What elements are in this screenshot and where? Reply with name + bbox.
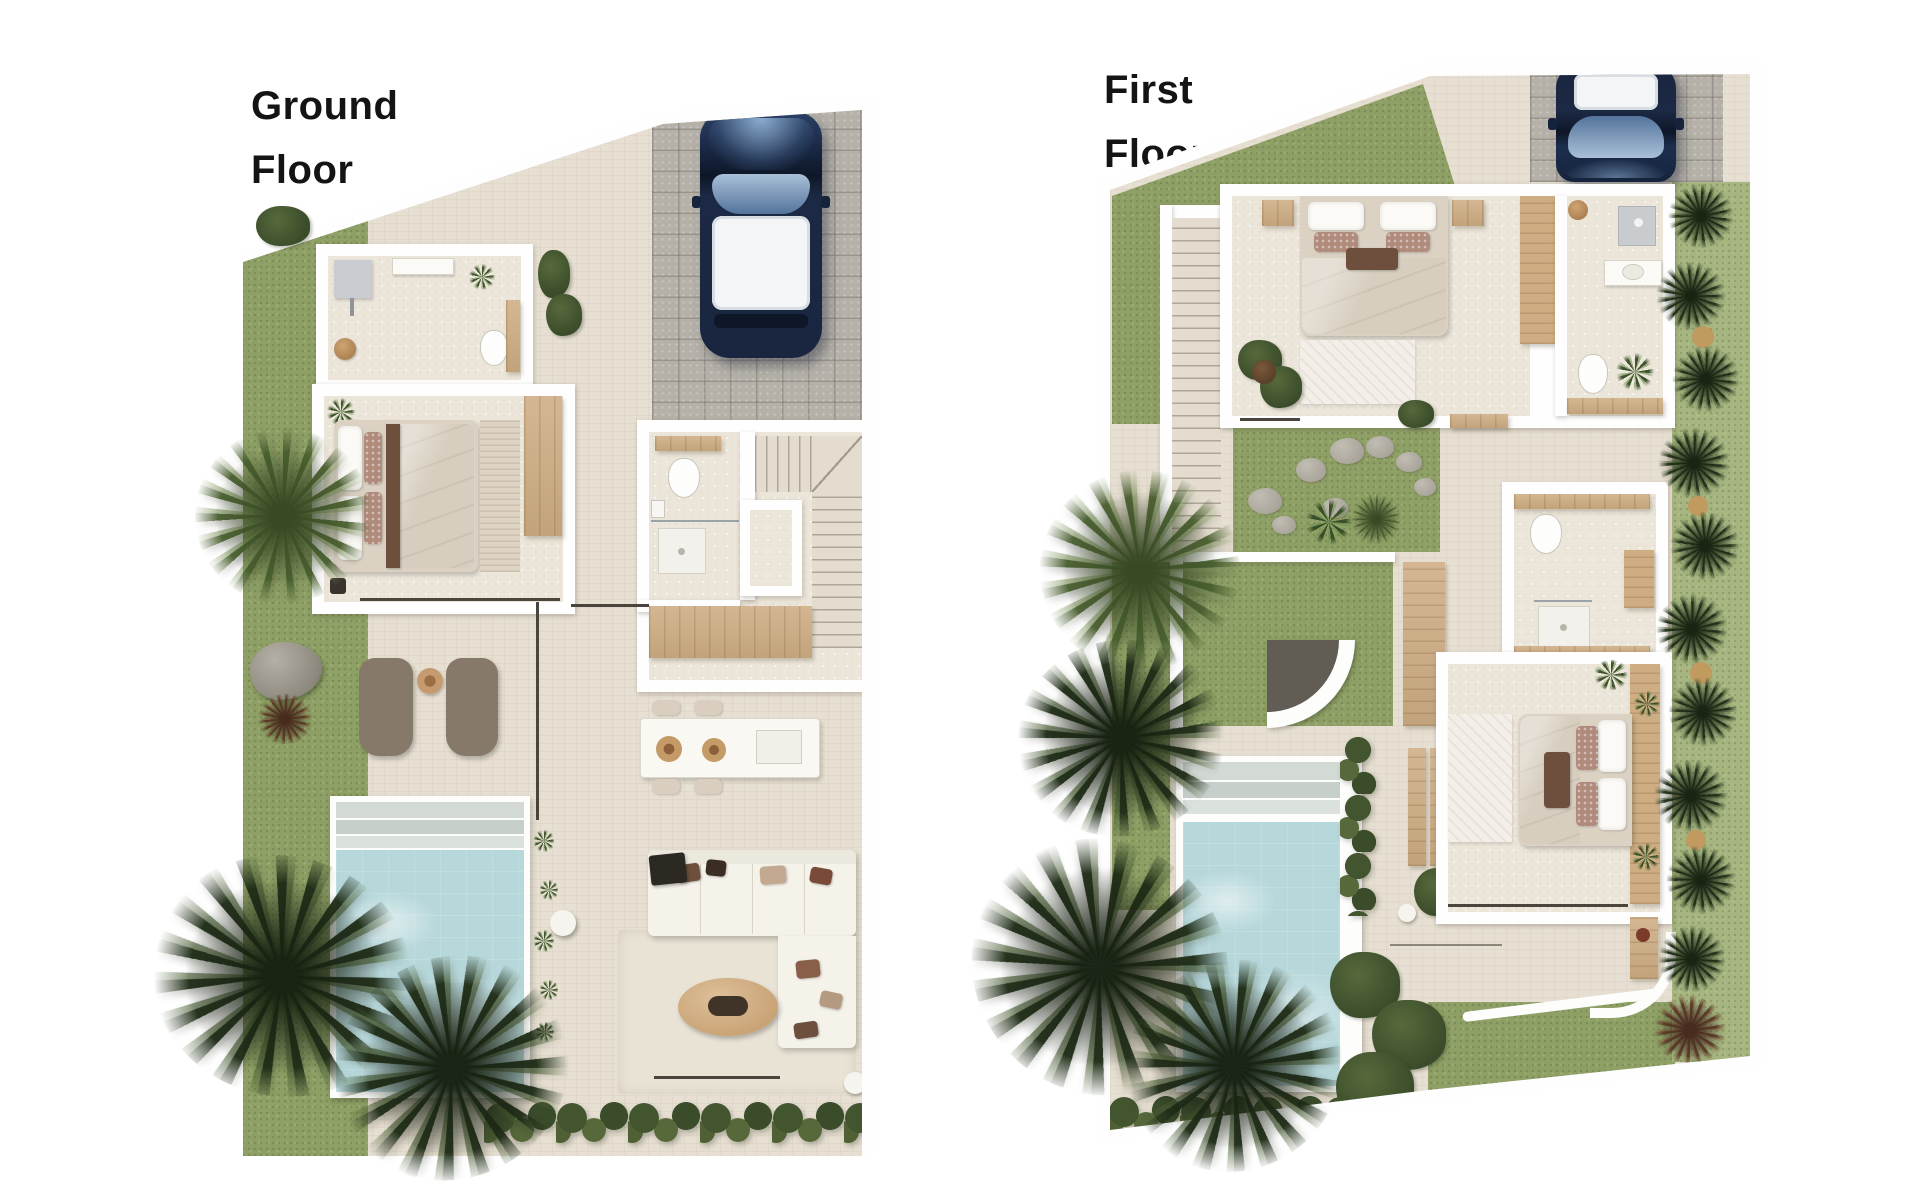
hedge-column [1340, 736, 1378, 916]
car-windshield [1568, 116, 1664, 158]
car [1556, 64, 1676, 182]
plan-title-line: First [1104, 58, 1206, 122]
plant [1634, 690, 1660, 718]
lumbar-pillow [1544, 752, 1570, 808]
first-floor-plan: First Floor [0, 0, 1920, 1200]
bush [1398, 400, 1434, 428]
sliding-door-track [1448, 904, 1628, 907]
car-mirror [1675, 118, 1684, 130]
basket [1568, 200, 1588, 220]
pool-step [1183, 800, 1340, 814]
stepping-stone [1272, 516, 1296, 534]
pillow [1380, 202, 1436, 230]
lot-interior [0, 0, 1920, 1200]
nightstand [1262, 200, 1294, 226]
shower-head [1634, 218, 1643, 227]
vanity-bench [1624, 550, 1654, 608]
plant-pot [1252, 360, 1276, 384]
rug [1448, 714, 1512, 842]
nightstand [1452, 200, 1484, 226]
stepping-stone [1330, 438, 1364, 464]
dry-frond [1692, 326, 1714, 348]
plant [1632, 842, 1660, 872]
wood-lounger [1408, 748, 1426, 866]
sliding-door-track [1240, 418, 1300, 421]
accent-pillow [1576, 782, 1598, 826]
rug [1300, 340, 1415, 404]
toilet [1578, 354, 1608, 394]
side-table [1398, 904, 1416, 922]
plant [1616, 352, 1654, 392]
floor-plan-sheet: Ground Floor [0, 0, 1920, 1200]
car-hood-highlight [1566, 160, 1666, 178]
plant [1592, 660, 1630, 690]
stepping-stone [1414, 478, 1436, 496]
pillow [1598, 778, 1626, 830]
step-edge [1390, 944, 1502, 946]
stepping-stone [1248, 488, 1282, 514]
fern-plant [1306, 498, 1352, 546]
border-palm [1668, 184, 1734, 248]
car-roof [1574, 74, 1658, 110]
accent-pillow [1576, 726, 1598, 770]
bath-wood-floor [1567, 398, 1663, 414]
shower-drain [1560, 624, 1567, 631]
philodendron [1336, 1052, 1414, 1124]
shower-glass [1534, 600, 1592, 602]
car-mirror [1548, 118, 1557, 130]
agave-plant [1352, 492, 1400, 546]
sink [1622, 264, 1644, 280]
stepping-stone [1396, 452, 1422, 472]
threshold-bench [1450, 414, 1508, 428]
lumbar-pillow [1346, 248, 1398, 270]
stepping-stone [1366, 436, 1394, 458]
pillow [1308, 202, 1364, 230]
bath-counter [1514, 494, 1650, 509]
toilet [1530, 514, 1562, 554]
pillow [1598, 720, 1626, 772]
bath-partition [1555, 196, 1567, 416]
wardrobe [1520, 196, 1555, 344]
stepping-stone [1296, 458, 1326, 482]
